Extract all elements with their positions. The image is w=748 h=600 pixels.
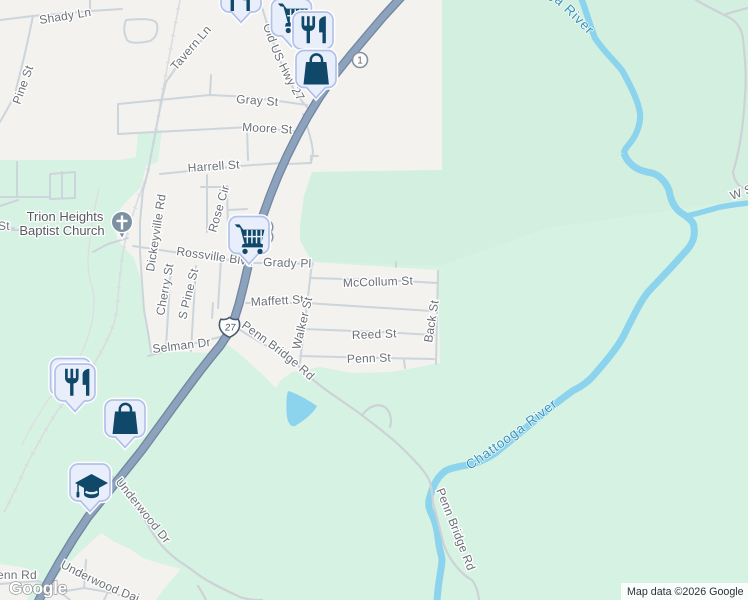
svg-text:Reed St: Reed St (352, 326, 398, 342)
svg-text:Trion Heights: Trion Heights (27, 209, 104, 224)
svg-text:St: St (0, 219, 10, 233)
svg-text:McCollum St: McCollum St (343, 274, 414, 290)
svg-text:Baptist Church: Baptist Church (19, 223, 104, 238)
svg-text:Gray St: Gray St (236, 92, 279, 109)
svg-text:1: 1 (357, 56, 363, 67)
svg-text:Map data ©2026 Google: Map data ©2026 Google (627, 586, 744, 598)
svg-text:Moore St: Moore St (242, 120, 293, 137)
svg-text:Penn St: Penn St (347, 350, 392, 366)
svg-text:Google: Google (9, 578, 68, 598)
svg-text:Maffett St: Maffett St (250, 292, 304, 309)
svg-text:Grady Pl: Grady Pl (263, 255, 312, 271)
svg-text:27: 27 (224, 323, 236, 334)
